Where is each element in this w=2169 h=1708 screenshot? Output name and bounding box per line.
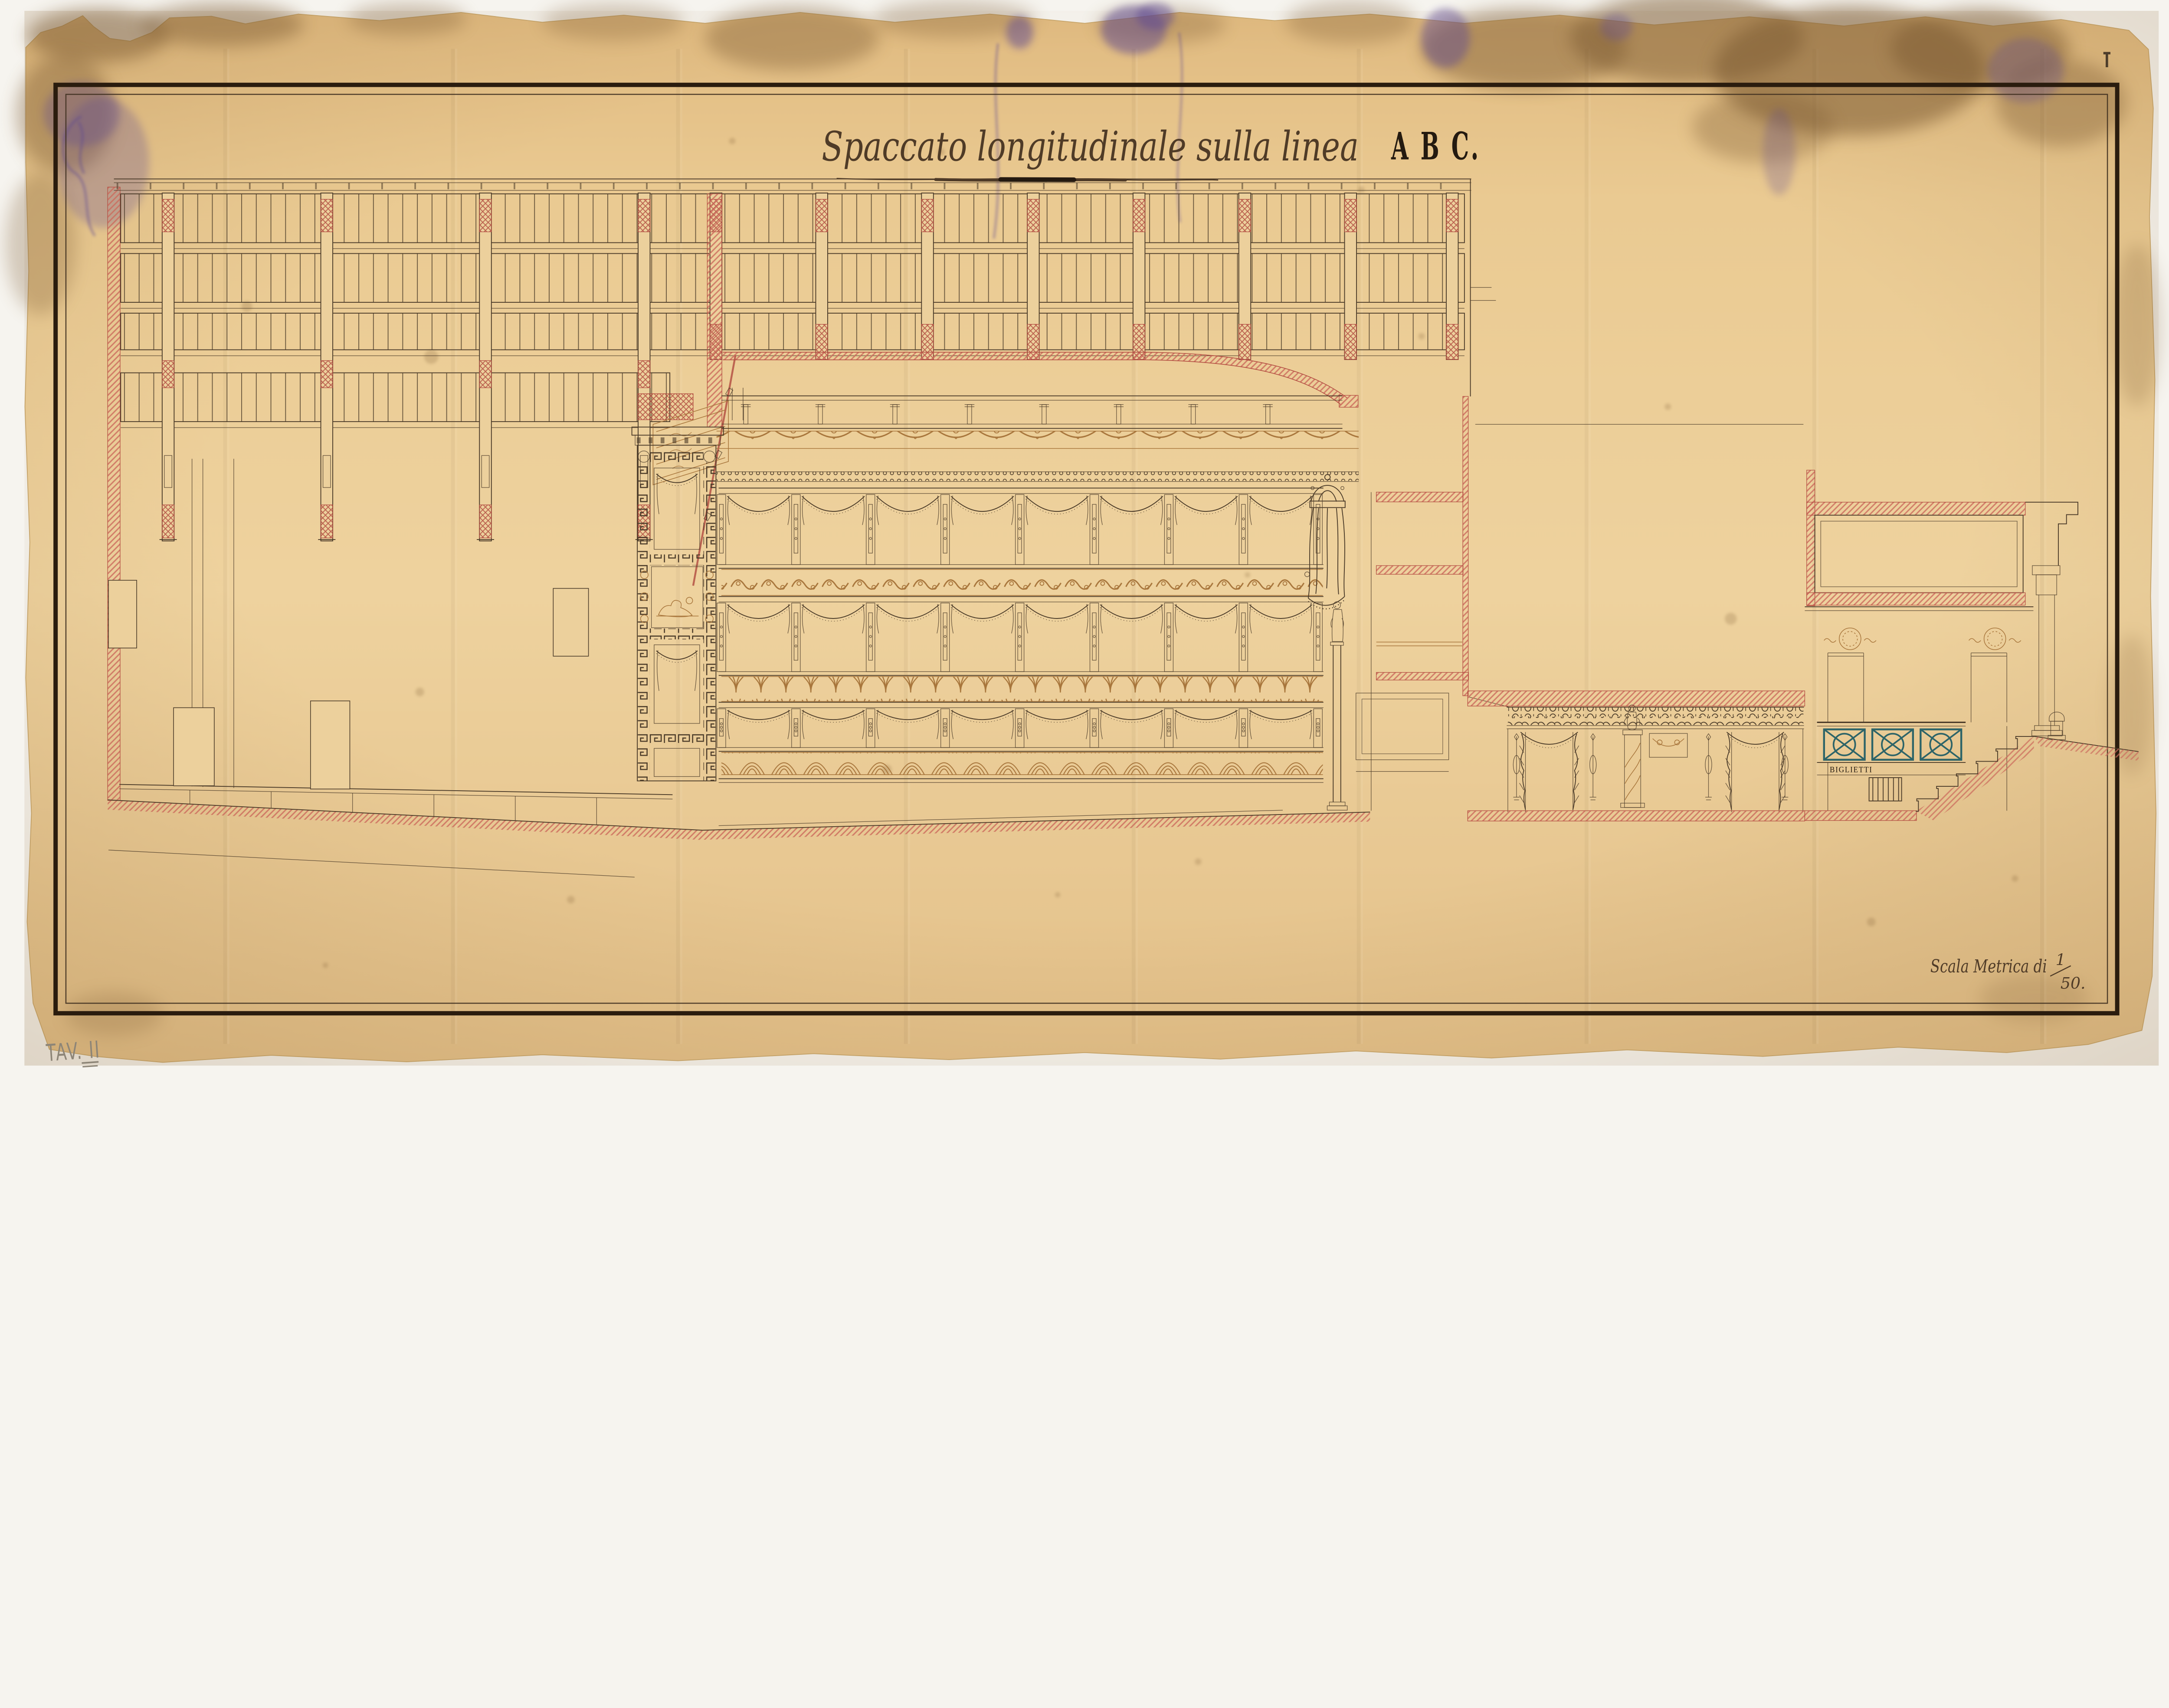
ticket-sign-text: BIGLIETTI bbox=[1830, 765, 1873, 774]
title-script-text: Spaccato longitudinale sulla linea bbox=[822, 123, 1359, 170]
ticket-window-railing bbox=[1824, 730, 1961, 760]
anthemion-frieze bbox=[721, 677, 1323, 702]
scroll-frieze bbox=[721, 569, 1323, 596]
title-section-letters: A B C. bbox=[1391, 124, 1481, 169]
scale-label-text: Scala Metrica di bbox=[1930, 956, 2047, 977]
bell-fringe-band bbox=[717, 472, 1359, 481]
architectural-drawing-sheet: Spaccato longitudinale sulla linea A B C… bbox=[0, 0, 2169, 1068]
vault-springer-block bbox=[1339, 395, 1358, 407]
wave-frieze bbox=[1508, 717, 1803, 725]
scale-fraction-denominator: 50. bbox=[2061, 974, 2086, 992]
scale-fraction-numerator: 1 bbox=[2056, 951, 2066, 969]
shell-frieze bbox=[721, 753, 1323, 775]
egg-dart-cornice bbox=[1508, 707, 1803, 716]
garland-frieze bbox=[717, 431, 1359, 448]
scanned-sheet-container: Spaccato longitudinale sulla linea A B C… bbox=[0, 0, 2169, 1068]
foyer-ceiling-slab bbox=[1468, 691, 1805, 706]
ticket-grille-window bbox=[1869, 778, 1902, 801]
foyer-floor-slab bbox=[1468, 811, 1805, 821]
plate-annotation: TAV. II bbox=[45, 1036, 102, 1068]
stage-wall-doorway bbox=[108, 580, 137, 648]
